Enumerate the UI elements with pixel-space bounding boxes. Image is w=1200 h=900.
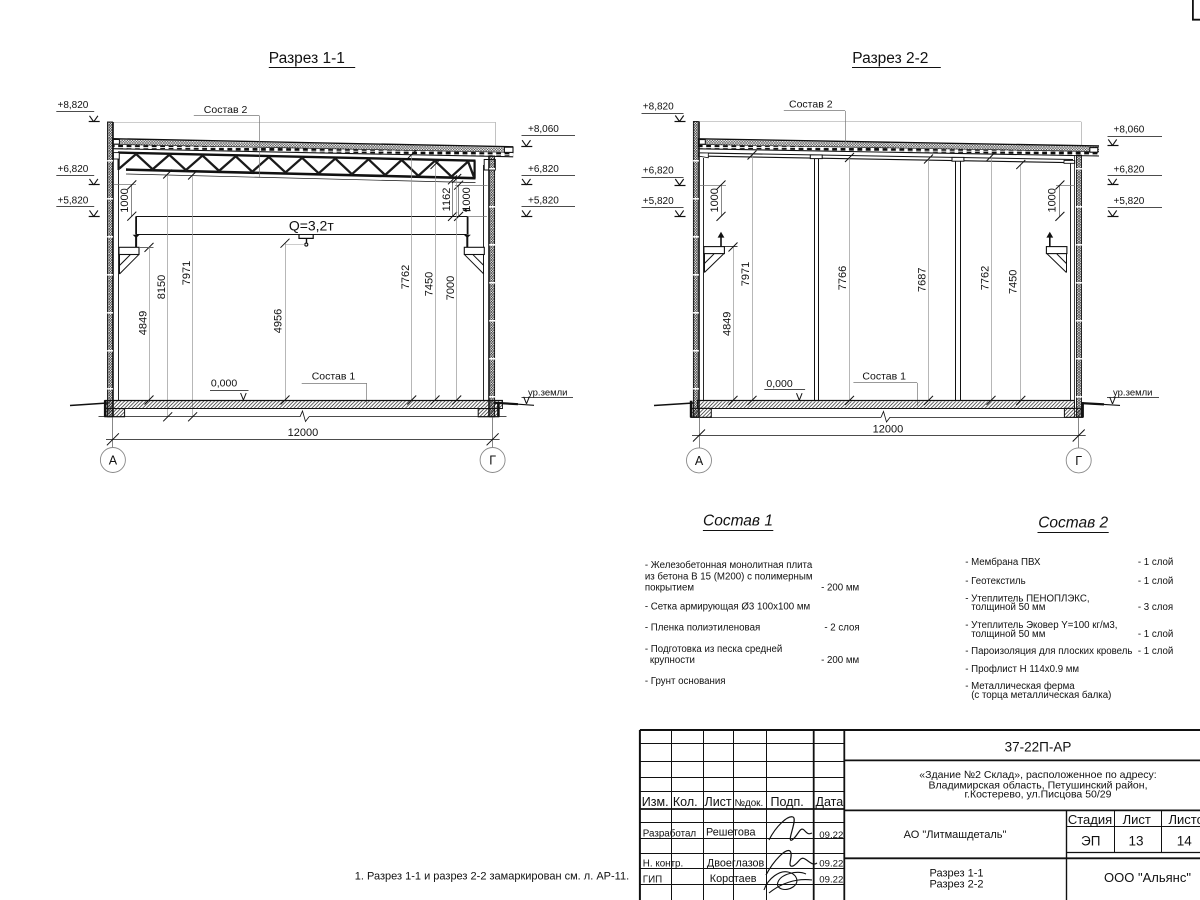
svg-text:Г: Г — [489, 454, 496, 468]
svg-text:- Подготовка из песка средней: - Подготовка из песка средней — [645, 644, 782, 655]
svg-text:Листов: Листов — [1169, 812, 1200, 827]
svg-text:Изм.: Изм. — [642, 795, 669, 809]
svg-text:Лист: Лист — [1123, 812, 1151, 827]
svg-text:Разрез 2-2: Разрез 2-2 — [852, 50, 928, 67]
svg-text:Коротаев: Коротаев — [710, 873, 757, 885]
svg-text:7450: 7450 — [1007, 270, 1019, 294]
svg-text:7762: 7762 — [979, 266, 991, 290]
svg-text:+6,820: +6,820 — [643, 166, 674, 177]
svg-text:А: А — [695, 454, 704, 468]
svg-text:1000: 1000 — [1046, 188, 1058, 212]
svg-text:+5,820: +5,820 — [528, 195, 559, 206]
svg-text:Состав 2: Состав 2 — [1038, 515, 1108, 532]
svg-text:Состав 1: Состав 1 — [862, 371, 906, 383]
svg-text:Состав 2: Состав 2 — [789, 99, 833, 111]
svg-text:ур.земли: ур.земли — [1113, 387, 1152, 398]
svg-text:12000: 12000 — [873, 424, 904, 436]
svg-text:- 1 слой: - 1 слой — [1138, 576, 1173, 587]
svg-text:- 200 мм: - 200 мм — [821, 655, 859, 666]
svg-text:7971: 7971 — [740, 262, 752, 286]
svg-text:1. Разрез 1-1 и разрез 2-2 зам: 1. Разрез 1-1 и разрез 2-2 замаркирован … — [355, 871, 629, 883]
svg-text:09.22: 09.22 — [819, 830, 843, 841]
svg-text:37-22П-АР: 37-22П-АР — [1005, 739, 1072, 754]
svg-text:Стадия: Стадия — [1068, 812, 1112, 827]
svg-text:из бетона В 15 (М200) с полиме: из бетона В 15 (М200) с полимерным — [645, 571, 813, 582]
svg-text:Лист: Лист — [705, 795, 732, 809]
svg-text:- Мембрана ПВХ: - Мембрана ПВХ — [965, 557, 1041, 568]
svg-text:+8,820: +8,820 — [643, 102, 674, 113]
svg-text:толщиной 50 мм: толщиной 50 мм — [971, 629, 1045, 640]
svg-text:4956: 4956 — [272, 309, 284, 333]
svg-text:+5,820: +5,820 — [58, 195, 89, 206]
svg-text:ЭП: ЭП — [1081, 834, 1100, 849]
svg-text:Решетова: Решетова — [706, 827, 756, 839]
svg-text:Кол.: Кол. — [673, 795, 698, 809]
svg-text:Г: Г — [1075, 454, 1082, 468]
svg-text:крупности: крупности — [650, 655, 695, 666]
svg-text:ГИП: ГИП — [643, 875, 662, 886]
svg-text:09.22: 09.22 — [819, 859, 843, 870]
svg-text:(с торца металлическая балка): (с торца металлическая балка) — [971, 690, 1111, 701]
svg-text:Состав 1: Состав 1 — [312, 370, 356, 382]
svg-text:12000: 12000 — [288, 427, 319, 439]
svg-text:7687: 7687 — [916, 267, 928, 291]
svg-text:4849: 4849 — [722, 312, 734, 336]
svg-text:+5,820: +5,820 — [1114, 196, 1145, 207]
svg-text:АО "Литмашдеталь": АО "Литмашдеталь" — [904, 829, 1007, 841]
svg-text:+8,060: +8,060 — [1114, 125, 1145, 136]
svg-text:- 200 мм: - 200 мм — [821, 583, 859, 594]
svg-text:- Геотекстиль: - Геотекстиль — [965, 576, 1026, 587]
svg-text:Разрез 2-2: Разрез 2-2 — [929, 879, 983, 891]
svg-text:ур.земли: ур.земли — [528, 387, 567, 398]
svg-text:Q=3,2т: Q=3,2т — [289, 218, 335, 234]
svg-text:- Грунт основания: - Грунт основания — [645, 676, 726, 687]
svg-text:толщиной 50 мм: толщиной 50 мм — [971, 602, 1045, 613]
svg-text:- 1 слой: - 1 слой — [1138, 646, 1173, 657]
svg-text:№док.: №док. — [735, 798, 764, 809]
svg-text:13: 13 — [1128, 834, 1143, 849]
svg-text:- Пленка полиэтиленовая: - Пленка полиэтиленовая — [645, 623, 760, 634]
svg-text:- Пароизоляция для плоских кро: - Пароизоляция для плоских кровель — [965, 646, 1132, 657]
svg-text:14: 14 — [1177, 834, 1193, 849]
svg-text:4849: 4849 — [137, 311, 149, 335]
svg-text:+8,060: +8,060 — [528, 124, 559, 135]
svg-text:Состав 2: Состав 2 — [204, 104, 248, 116]
svg-text:покрытием: покрытием — [645, 583, 694, 594]
svg-text:7450: 7450 — [423, 272, 435, 296]
svg-text:+6,820: +6,820 — [58, 164, 89, 175]
svg-text:1162: 1162 — [441, 188, 453, 212]
svg-text:Н. контр.: Н. контр. — [643, 858, 683, 869]
svg-text:- 1 слой: - 1 слой — [1138, 629, 1173, 640]
svg-text:0,000: 0,000 — [766, 378, 792, 390]
svg-text:г.Костерево, ул.Писцова 50/29: г.Костерево, ул.Писцова 50/29 — [965, 789, 1112, 801]
svg-text:Разрез 1-1: Разрез 1-1 — [269, 50, 345, 67]
svg-text:- 2 слоя: - 2 слоя — [824, 623, 859, 634]
svg-text:7766: 7766 — [837, 266, 849, 290]
svg-text:Подп.: Подп. — [771, 795, 804, 809]
svg-text:7762: 7762 — [400, 265, 412, 289]
svg-text:+6,820: +6,820 — [528, 164, 559, 175]
svg-text:- Сетка армирующая Ø3 100х100: - Сетка армирующая Ø3 100х100 мм — [645, 602, 810, 613]
svg-text:Разработал: Разработал — [643, 828, 697, 839]
svg-text:А: А — [109, 454, 118, 468]
svg-text:+5,820: +5,820 — [643, 196, 674, 207]
svg-text:8150: 8150 — [156, 275, 168, 299]
svg-text:09.22: 09.22 — [819, 875, 843, 886]
svg-text:Дата: Дата — [816, 795, 844, 809]
svg-text:1000: 1000 — [119, 188, 131, 212]
svg-text:1000: 1000 — [461, 187, 473, 211]
svg-text:- Железобетонная монолитная п: - Железобетонная монолитная плита — [645, 560, 813, 571]
svg-text:Двоеглазов: Двоеглазов — [707, 858, 765, 870]
svg-text:+6,820: +6,820 — [1114, 164, 1145, 175]
svg-text:7000: 7000 — [445, 276, 457, 300]
svg-text:+8,820: +8,820 — [58, 100, 89, 111]
svg-text:7971: 7971 — [181, 261, 193, 285]
svg-text:0,000: 0,000 — [211, 378, 237, 390]
svg-text:- Профлист Н 114х0.9 мм: - Профлист Н 114х0.9 мм — [965, 664, 1079, 675]
svg-text:ООО "Альянс": ООО "Альянс" — [1104, 870, 1191, 885]
svg-text:- 3 слоя: - 3 слоя — [1138, 602, 1173, 613]
svg-text:Состав 1: Состав 1 — [703, 513, 773, 530]
svg-text:1000: 1000 — [709, 188, 721, 212]
svg-text:- 1 слой: - 1 слой — [1138, 557, 1173, 568]
